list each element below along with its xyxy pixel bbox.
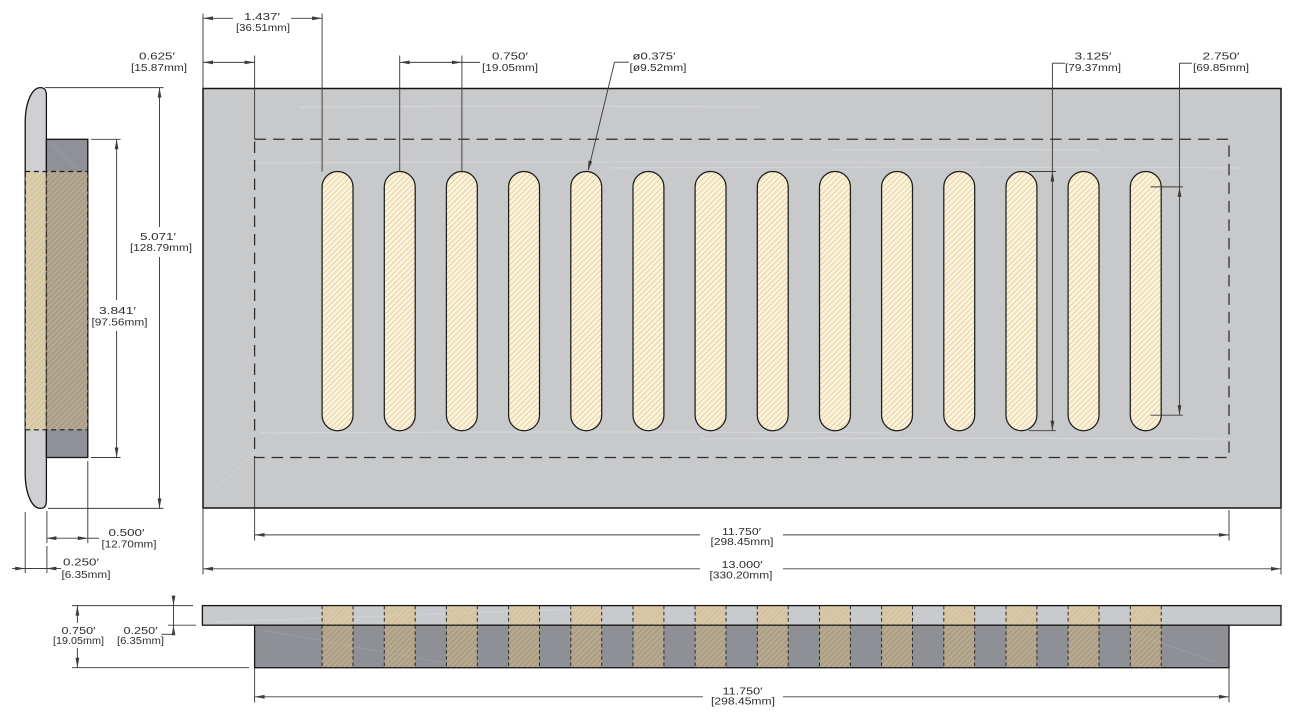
- svg-text:[128.79mm]: [128.79mm]: [130, 243, 192, 254]
- svg-text:ø0.375′: ø0.375′: [633, 52, 676, 63]
- svg-text:[97.56mm]: [97.56mm]: [92, 317, 148, 328]
- svg-text:[298.45mm]: [298.45mm]: [711, 697, 775, 708]
- svg-text:3.841′: 3.841′: [99, 306, 136, 317]
- svg-text:3.125′: 3.125′: [1075, 52, 1112, 63]
- svg-text:2.750′: 2.750′: [1203, 52, 1240, 63]
- svg-text:[19.05mm]: [19.05mm]: [482, 63, 538, 74]
- svg-text:0.750′: 0.750′: [492, 52, 528, 63]
- svg-text:[36.51mm]: [36.51mm]: [236, 23, 290, 34]
- svg-text:[ø9.52mm]: [ø9.52mm]: [630, 63, 687, 74]
- svg-text:[15.87mm]: [15.87mm]: [131, 63, 187, 74]
- svg-text:5.071′: 5.071′: [140, 232, 176, 243]
- svg-text:0.500′: 0.500′: [109, 528, 145, 539]
- svg-text:[12.70mm]: [12.70mm]: [102, 539, 157, 550]
- svg-text:0.625′: 0.625′: [139, 52, 175, 63]
- svg-text:[6.35mm]: [6.35mm]: [117, 636, 164, 647]
- svg-text:[298.45mm]: [298.45mm]: [711, 537, 774, 548]
- svg-text:1.437′: 1.437′: [244, 12, 280, 23]
- svg-text:[19.05mm]: [19.05mm]: [53, 636, 104, 647]
- svg-text:[69.85mm]: [69.85mm]: [1193, 63, 1249, 74]
- svg-text:13.000′: 13.000′: [722, 560, 763, 571]
- svg-text:[79.37mm]: [79.37mm]: [1065, 63, 1121, 74]
- svg-text:[330.20mm]: [330.20mm]: [710, 571, 773, 582]
- svg-text:0.250′: 0.250′: [63, 558, 99, 569]
- svg-text:[6.35mm]: [6.35mm]: [62, 570, 111, 581]
